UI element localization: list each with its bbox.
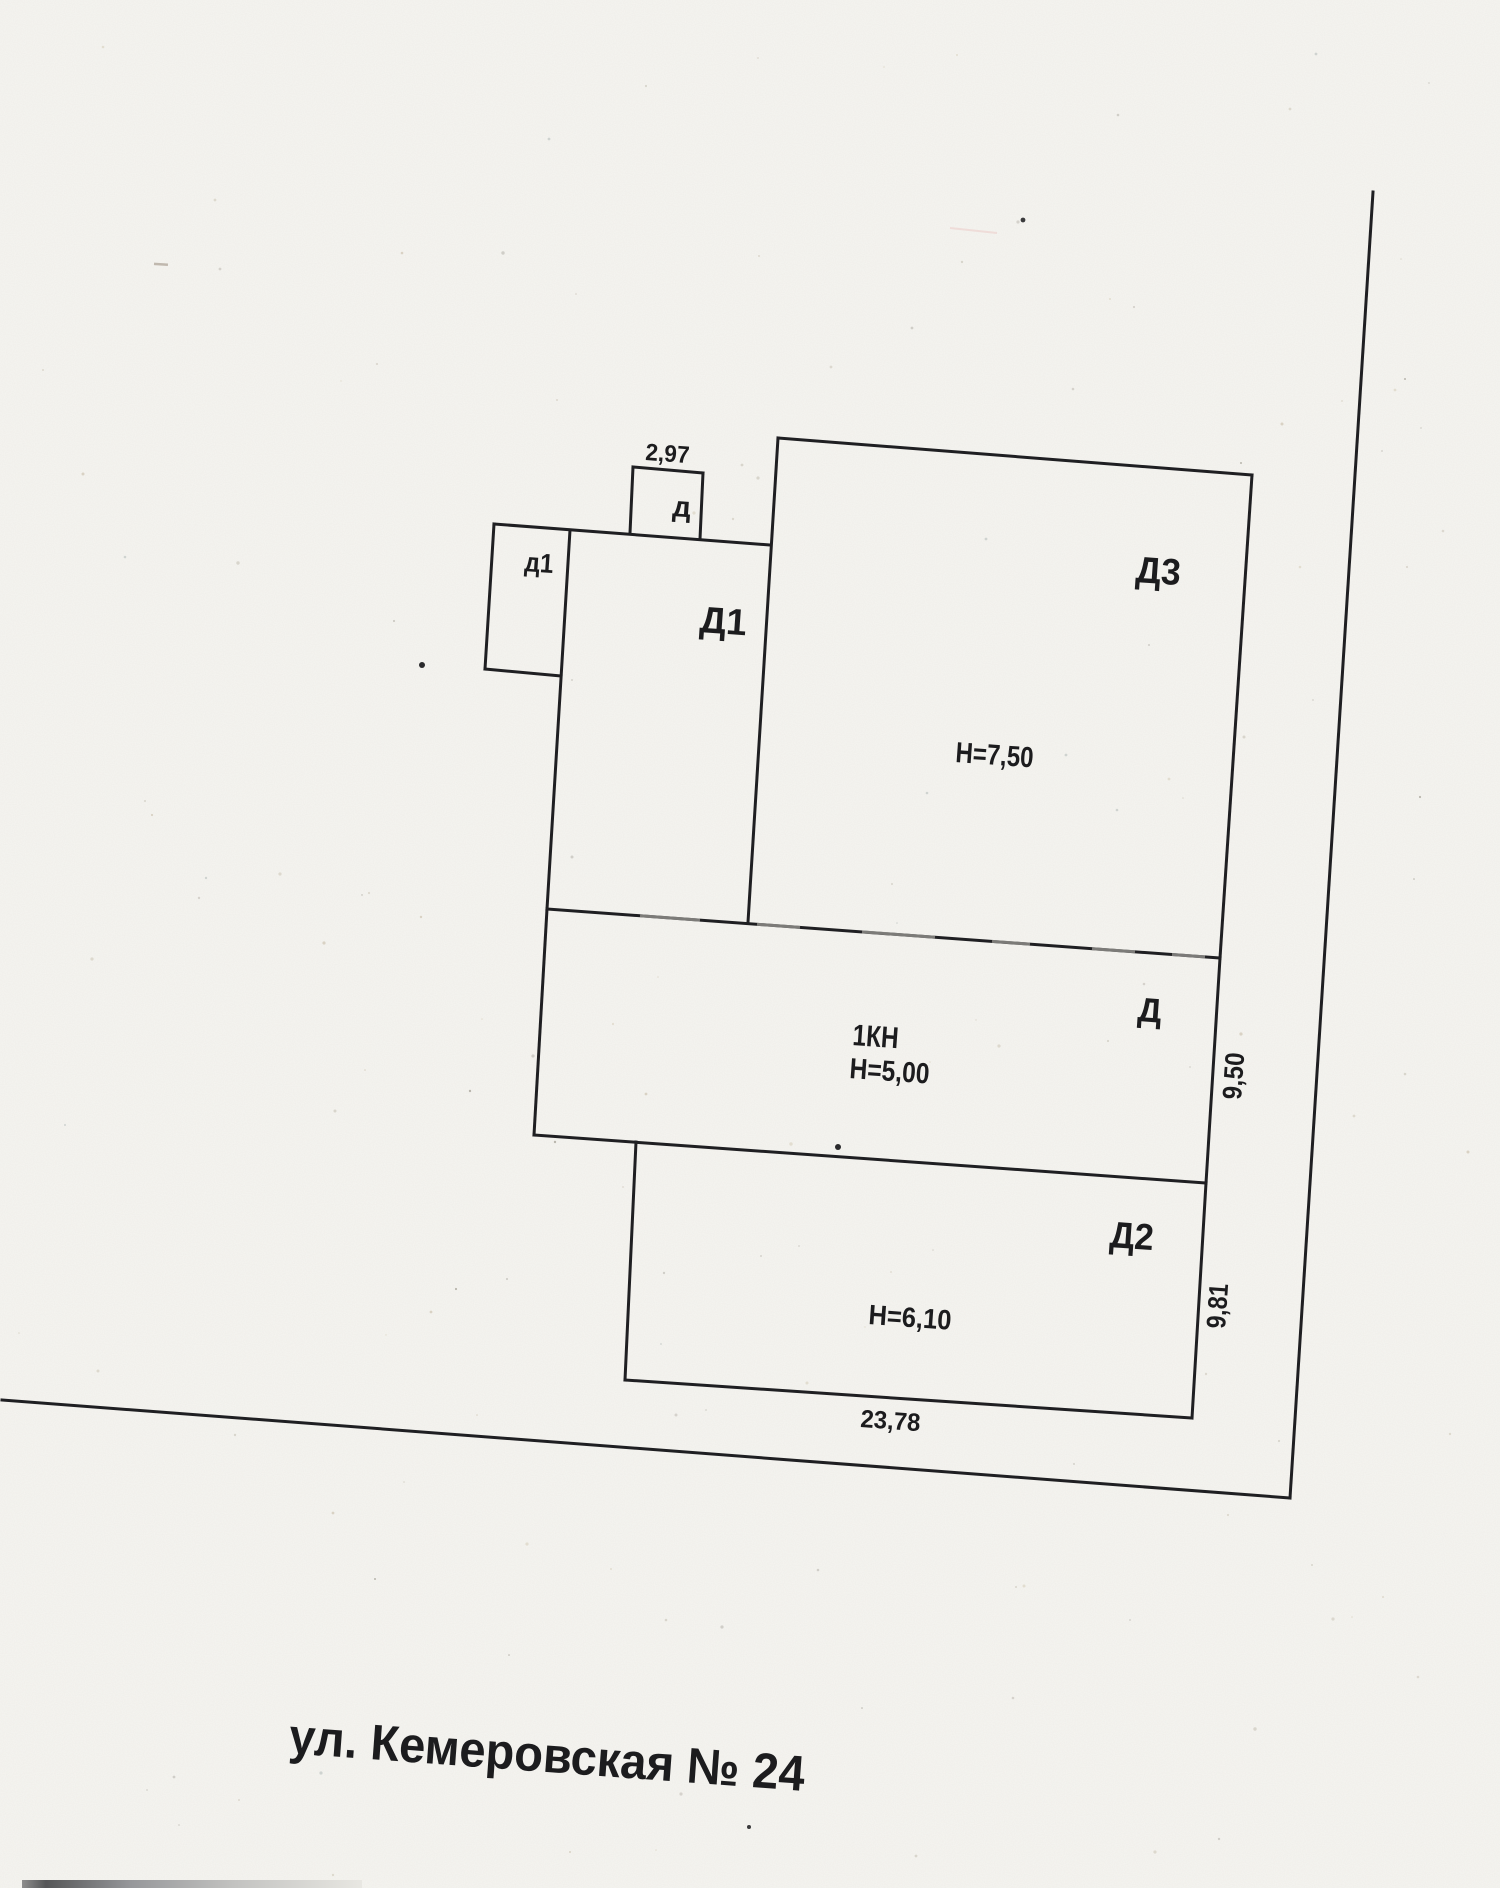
- svg-text:Д: Д: [1136, 991, 1163, 1031]
- svg-text:Д1: Д1: [698, 599, 748, 643]
- svg-text:9,81: 9,81: [1201, 1282, 1234, 1329]
- svg-text:Д3: Д3: [1134, 549, 1182, 593]
- svg-text:2,97: 2,97: [645, 439, 691, 469]
- svg-text:д: д: [672, 491, 693, 524]
- svg-text:9,50: 9,50: [1217, 1051, 1250, 1100]
- svg-text:д1: д1: [524, 547, 555, 579]
- svg-text:23,78: 23,78: [860, 1405, 922, 1437]
- svg-text:1КН: 1КН: [852, 1019, 900, 1055]
- svg-text:H=7,50: H=7,50: [955, 737, 1035, 774]
- svg-text:Д2: Д2: [1108, 1214, 1155, 1258]
- svg-text:H=6,10: H=6,10: [868, 1299, 953, 1336]
- svg-text:H=5,00: H=5,00: [849, 1053, 931, 1091]
